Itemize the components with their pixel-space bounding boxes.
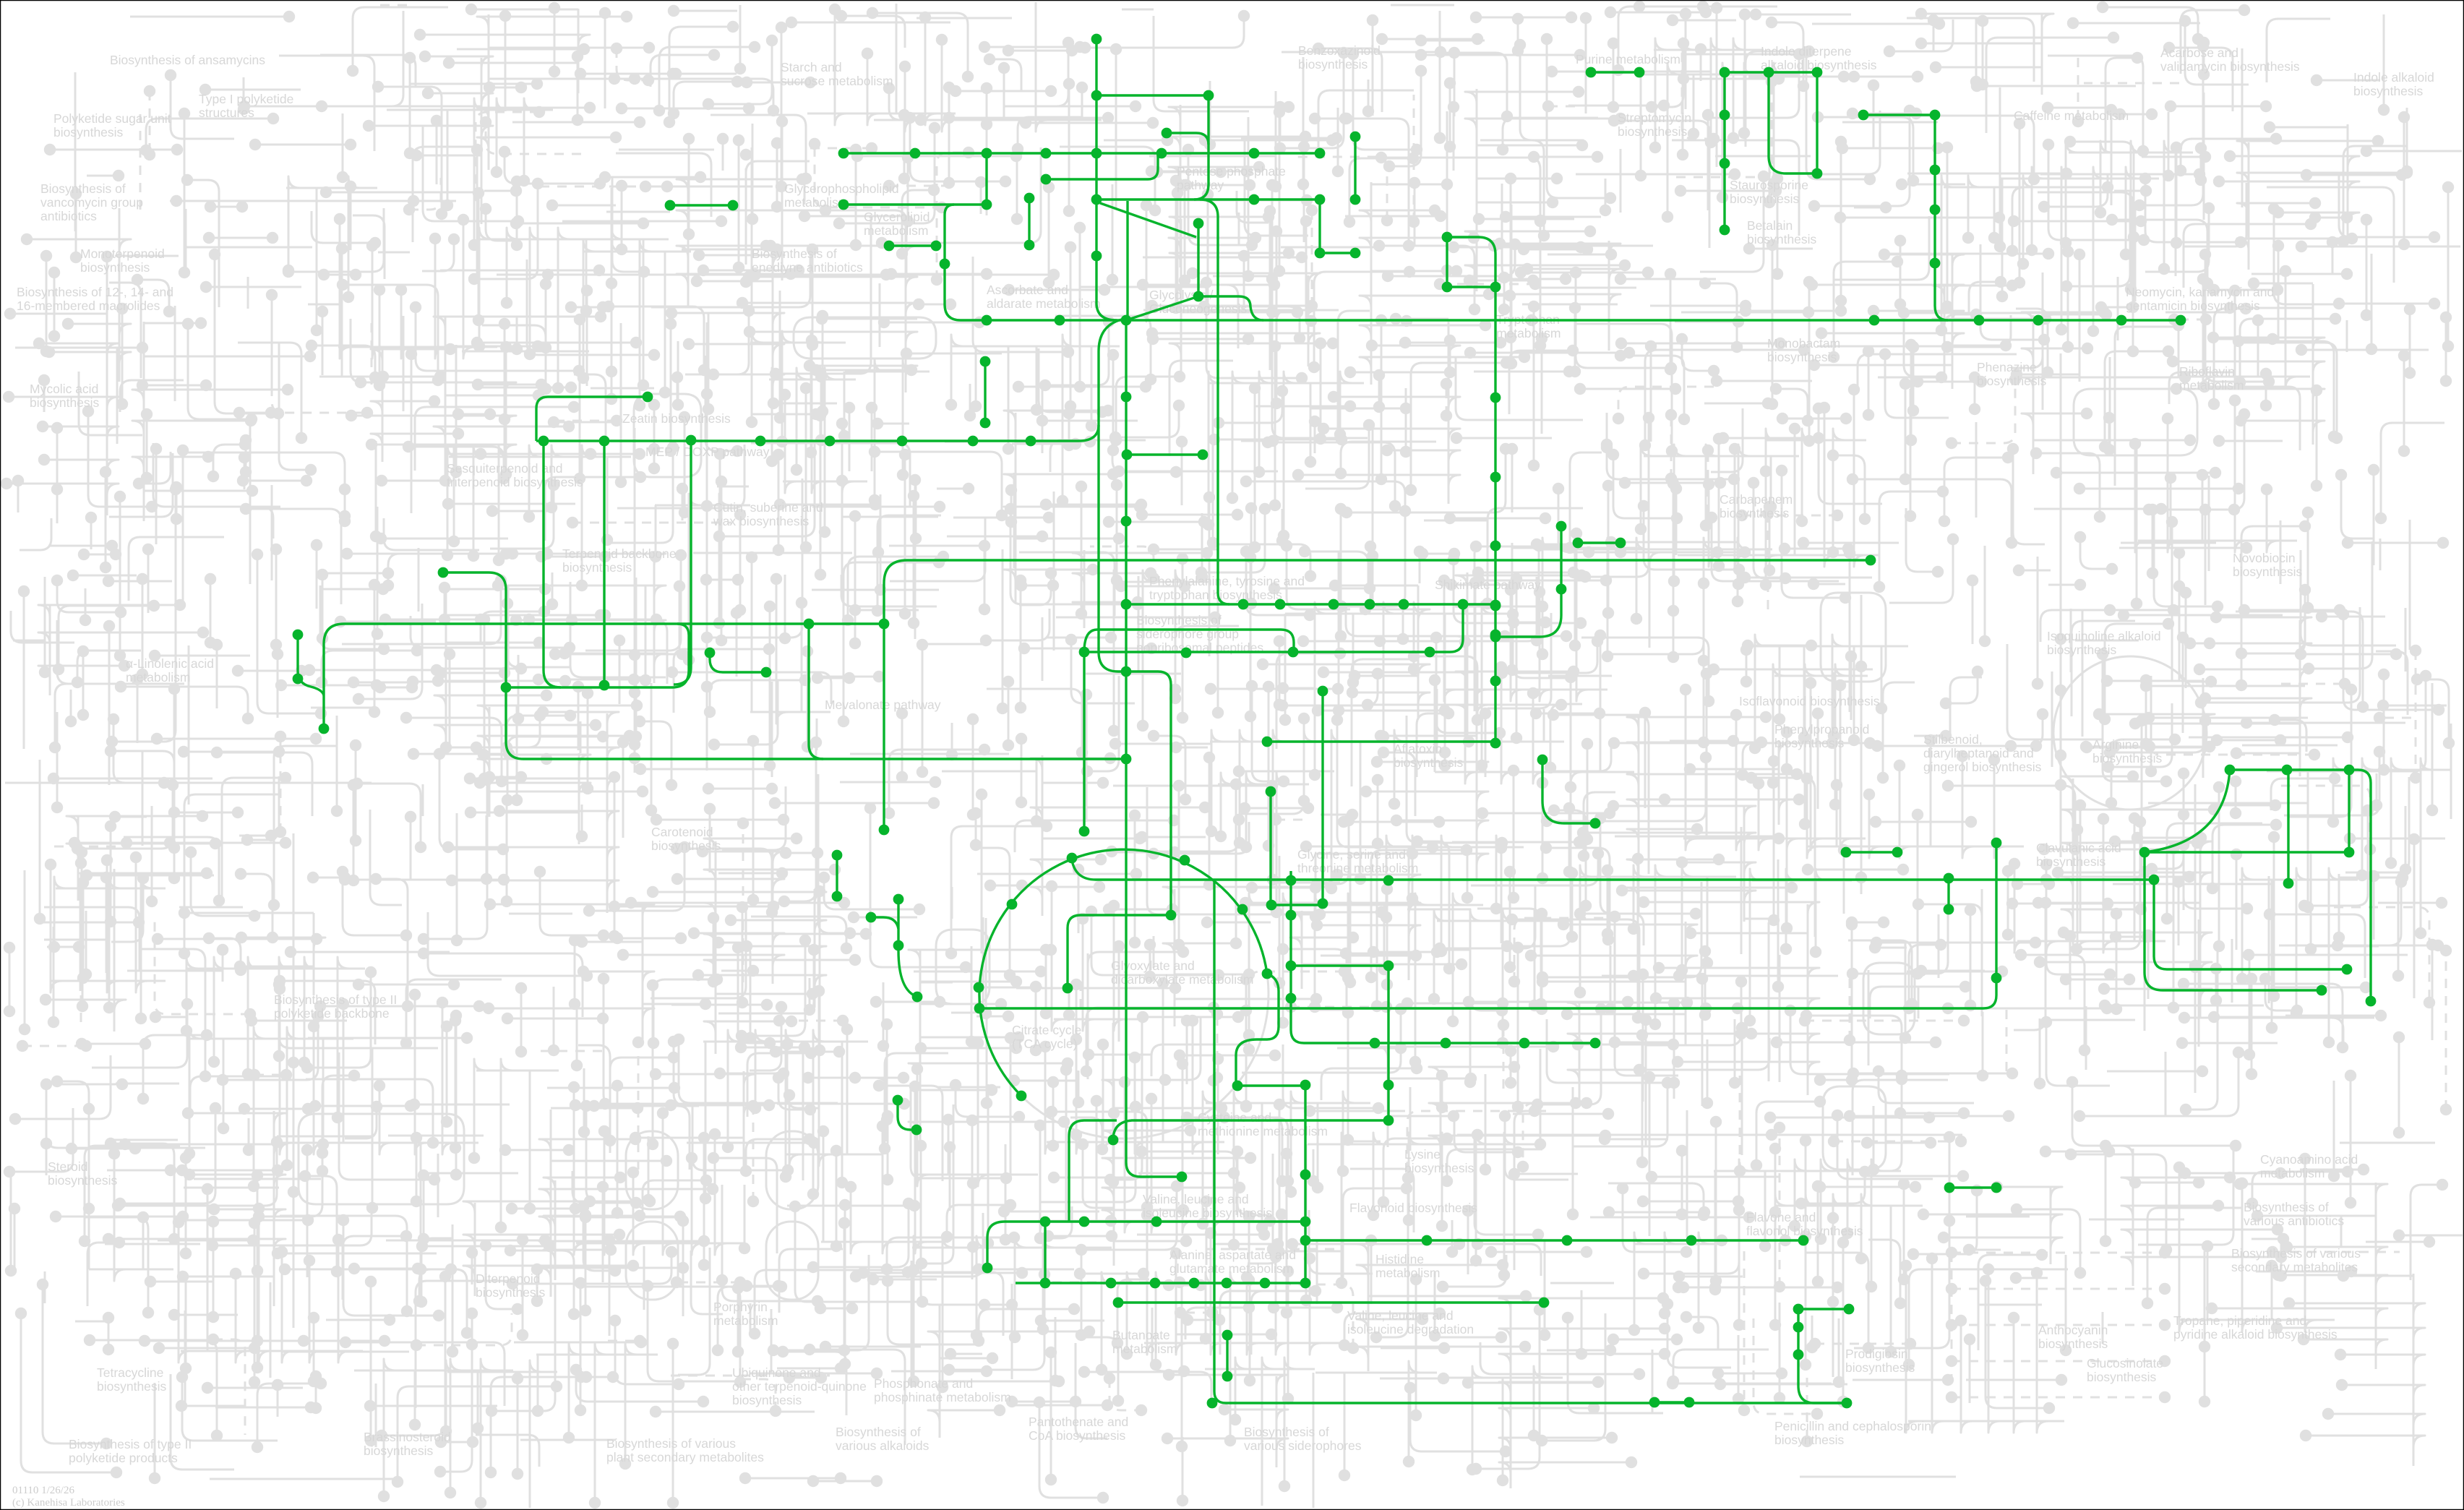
svg-text:biosynthesis: biosynthesis xyxy=(732,1393,802,1407)
svg-text:metabolism: metabolism xyxy=(2179,378,2244,392)
svg-text:Carbapenem: Carbapenem xyxy=(1720,492,1793,507)
svg-text:structures: structures xyxy=(199,106,254,120)
svg-text:Valine, leucine and: Valine, leucine and xyxy=(1143,1192,1249,1206)
svg-text:Histidine: Histidine xyxy=(1375,1252,1424,1266)
svg-text:biosynthesis: biosynthesis xyxy=(1774,736,1845,750)
svg-text:Phenazine: Phenazine xyxy=(1977,360,2037,374)
svg-text:Butanoate: Butanoate xyxy=(1112,1328,1170,1342)
svg-text:Biosynthesis of: Biosynthesis of xyxy=(40,181,126,196)
svg-text:biosynthesis: biosynthesis xyxy=(1774,1433,1845,1447)
svg-text:biosynthesis: biosynthesis xyxy=(53,125,124,140)
svg-text:Isoquinoline alkaloid: Isoquinoline alkaloid xyxy=(2047,629,2161,643)
svg-text:Prodigiosin: Prodigiosin xyxy=(1845,1347,1908,1361)
svg-text:antibiotics: antibiotics xyxy=(40,209,97,223)
svg-text:Flavonoid biosynthesis: Flavonoid biosynthesis xyxy=(1349,1201,1477,1215)
svg-text:Biosynthesis of: Biosynthesis of xyxy=(1136,613,1222,627)
svg-text:biosynthesis: biosynthesis xyxy=(2036,854,2106,869)
svg-text:Betalain: Betalain xyxy=(1747,218,1793,233)
svg-text:biosynthesis: biosynthesis xyxy=(48,1173,118,1188)
svg-text:Alanine, aspartate and: Alanine, aspartate and xyxy=(1169,1248,1296,1262)
svg-text:vancomycin group: vancomycin group xyxy=(40,195,143,210)
svg-text:biosynthesis: biosynthesis xyxy=(80,260,150,275)
svg-text:Novobiocin: Novobiocin xyxy=(2233,551,2296,565)
svg-text:Lysine: Lysine xyxy=(1404,1147,1441,1162)
svg-text:Tetracycline: Tetracycline xyxy=(97,1365,163,1380)
svg-text:polyketide products: polyketide products xyxy=(69,1451,178,1465)
svg-text:Zeatin biosynthesis: Zeatin biosynthesis xyxy=(622,411,731,426)
svg-text:biosynthesis: biosynthesis xyxy=(2047,643,2117,657)
svg-text:various antibiotics: various antibiotics xyxy=(2244,1214,2344,1228)
svg-text:Ubiquinone and: Ubiquinone and xyxy=(732,1365,821,1380)
svg-text:metabolism: metabolism xyxy=(126,670,190,685)
svg-text:biosynthesis: biosynthesis xyxy=(364,1443,434,1458)
svg-text:biosynthesis: biosynthesis xyxy=(1720,506,1790,520)
svg-text:metabolism: metabolism xyxy=(2260,1166,2325,1180)
svg-text:Acarbose and: Acarbose and xyxy=(2160,46,2238,60)
svg-text:Biosynthesis of ansamycins: Biosynthesis of ansamycins xyxy=(110,53,265,67)
svg-text:polyketide backbone: polyketide backbone xyxy=(274,1006,390,1021)
svg-text:Diterpenoid: Diterpenoid xyxy=(476,1271,541,1286)
svg-text:wax biosynthesis: wax biosynthesis xyxy=(713,514,810,528)
svg-text:Starch and: Starch and xyxy=(781,60,842,74)
svg-text:Terpenoid backbone: Terpenoid backbone xyxy=(562,546,677,561)
svg-text:Cutin, suberine and: Cutin, suberine and xyxy=(713,500,823,515)
svg-text:metabolism: metabolism xyxy=(713,1313,778,1328)
svg-text:Type I polyketide: Type I polyketide xyxy=(199,92,293,106)
svg-text:Pantothenate and: Pantothenate and xyxy=(1029,1415,1128,1429)
svg-text:Biosynthesis of type II: Biosynthesis of type II xyxy=(69,1437,192,1451)
svg-text:gingerol biosynthesis: gingerol biosynthesis xyxy=(1923,760,2042,774)
svg-text:Biosynthesis of: Biosynthesis of xyxy=(836,1425,921,1439)
svg-text:Steroid: Steroid xyxy=(48,1159,87,1174)
svg-text:(TCA cycle): (TCA cycle) xyxy=(1012,1037,1077,1051)
svg-text:Glycine, serine and: Glycine, serine and xyxy=(1297,847,1406,862)
svg-text:Stilbenoid,: Stilbenoid, xyxy=(1923,732,1983,747)
svg-text:Indole alkaloid: Indole alkaloid xyxy=(2353,70,2434,85)
svg-text:biosynthesis: biosynthesis xyxy=(1618,124,1688,139)
svg-text:Staurosporine: Staurosporine xyxy=(1730,178,1808,192)
svg-text:Phosphonate and: Phosphonate and xyxy=(874,1376,973,1391)
svg-text:01110 1/26/26: 01110 1/26/26 xyxy=(12,1485,74,1496)
svg-text:Carotenoid: Carotenoid xyxy=(651,825,713,839)
svg-text:Riboflavin: Riboflavin xyxy=(2179,364,2235,379)
svg-text:Glyoxylate and: Glyoxylate and xyxy=(1111,958,1195,973)
svg-text:biosynthesis: biosynthesis xyxy=(1977,374,2047,388)
svg-text:phosphinate metabolism: phosphinate metabolism xyxy=(874,1390,1011,1404)
svg-text:aldarate metabolism: aldarate metabolism xyxy=(987,296,1101,311)
svg-text:Mycolic acid: Mycolic acid xyxy=(30,382,98,396)
svg-text:pyridine alkaloid biosynthesis: pyridine alkaloid biosynthesis xyxy=(2173,1327,2338,1342)
svg-text:Aflatoxin: Aflatoxin xyxy=(1394,742,1442,756)
svg-text:Biosynthesis of: Biosynthesis of xyxy=(1244,1425,1329,1439)
svg-text:biosynthesis: biosynthesis xyxy=(651,838,721,853)
svg-text:16-membered macrolides: 16-membered macrolides xyxy=(17,299,160,313)
svg-text:Streptomycin: Streptomycin xyxy=(1618,111,1691,125)
svg-text:MEP / DOXP pathway: MEP / DOXP pathway xyxy=(645,445,770,459)
svg-text:Biosynthesis of: Biosynthesis of xyxy=(2244,1200,2329,1214)
svg-text:Monoterpenoid: Monoterpenoid xyxy=(80,246,165,261)
svg-text:triterpenoid biosynthesis: triterpenoid biosynthesis xyxy=(447,475,583,489)
svg-text:metabolism: metabolism xyxy=(864,223,928,238)
svg-text:various siderophores: various siderophores xyxy=(1244,1438,1362,1453)
svg-text:Clavulanic acid: Clavulanic acid xyxy=(2036,841,2121,855)
svg-text:Biosynthesis of various: Biosynthesis of various xyxy=(2231,1246,2361,1261)
svg-text:Benzoxazinoid: Benzoxazinoid xyxy=(1298,43,1381,58)
svg-text:biosynthesis: biosynthesis xyxy=(2092,751,2163,765)
svg-text:biosynthesis: biosynthesis xyxy=(1730,192,1800,206)
svg-text:Flavone and: Flavone and xyxy=(1746,1210,1816,1224)
svg-text:glutamate metabolism: glutamate metabolism xyxy=(1169,1261,1293,1276)
svg-text:metabolism: metabolism xyxy=(1375,1266,1440,1280)
svg-text:other terpenoid-quinone: other terpenoid-quinone xyxy=(732,1379,867,1394)
svg-text:Cysteine and: Cysteine and xyxy=(1198,1110,1271,1125)
svg-text:Sesquiterpenoid and: Sesquiterpenoid and xyxy=(447,461,563,476)
svg-text:Glycerophospholipid: Glycerophospholipid xyxy=(784,181,899,196)
svg-text:Polyketide sugar unit: Polyketide sugar unit xyxy=(53,111,171,126)
svg-text:isoleucine degradation: isoleucine degradation xyxy=(1347,1322,1474,1337)
svg-text:dicarboxylate metabolism: dicarboxylate metabolism xyxy=(1111,972,1253,987)
svg-text:Citrate cycle: Citrate cycle xyxy=(1012,1023,1081,1037)
svg-text:methionine metabolism: methionine metabolism xyxy=(1198,1124,1328,1138)
svg-text:Biosynthesis of: Biosynthesis of xyxy=(752,246,837,261)
svg-text:Monobactam: Monobactam xyxy=(1767,336,1840,351)
svg-text:biosynthesis: biosynthesis xyxy=(1767,350,1837,364)
svg-text:threonine metabolism: threonine metabolism xyxy=(1297,861,1418,875)
svg-text:Ascorbate and: Ascorbate and xyxy=(987,283,1068,297)
svg-text:Tropane, piperidine and: Tropane, piperidine and xyxy=(2173,1313,2306,1328)
svg-text:various alkaloids: various alkaloids xyxy=(836,1438,930,1453)
svg-text:Penicillin and cephalosporin: Penicillin and cephalosporin xyxy=(1774,1419,1931,1433)
svg-text:Glycerolipid: Glycerolipid xyxy=(864,210,930,224)
svg-text:Biosynthesis of 12-, 14- and: Biosynthesis of 12-, 14- and xyxy=(17,285,173,299)
svg-text:Pentose phosphate: Pentose phosphate xyxy=(1177,164,1286,179)
svg-text:sucrose metabolism: sucrose metabolism xyxy=(781,74,893,88)
svg-text:Purine metabolism: Purine metabolism xyxy=(1576,52,1680,67)
svg-text:biosynthesis: biosynthesis xyxy=(2353,84,2424,98)
svg-text:enediyne antibiotics: enediyne antibiotics xyxy=(752,260,863,275)
svg-text:biosynthesis: biosynthesis xyxy=(1404,1161,1474,1175)
svg-text:Phenylpropanoid: Phenylpropanoid xyxy=(1774,722,1869,737)
svg-text:Phenylalanine, tyrosine and: Phenylalanine, tyrosine and xyxy=(1149,574,1305,588)
svg-text:tryptophan biosynthesis: tryptophan biosynthesis xyxy=(1149,588,1282,602)
svg-text:Neomycin, kanamycin and: Neomycin, kanamycin and xyxy=(2126,285,2274,299)
svg-text:pathway: pathway xyxy=(1177,178,1224,192)
svg-text:Porphyrin: Porphyrin xyxy=(713,1300,768,1314)
svg-text:biosynthesis: biosynthesis xyxy=(2038,1337,2108,1351)
svg-text:Biosynthesis of various: Biosynthesis of various xyxy=(606,1436,736,1451)
svg-text:Isoflavonoid biosynthesis: Isoflavonoid biosynthesis xyxy=(1739,694,1880,708)
svg-text:metabolism: metabolism xyxy=(1496,326,1561,340)
svg-text:biosynthesis: biosynthesis xyxy=(1747,232,1817,246)
svg-text:α-Linolenic acid: α-Linolenic acid xyxy=(126,656,214,671)
svg-text:(c) Kanehisa Laboratories: (c) Kanehisa Laboratories xyxy=(12,1497,125,1509)
svg-text:biosynthesis: biosynthesis xyxy=(1298,57,1368,72)
svg-text:Arginine: Arginine xyxy=(2092,737,2139,752)
svg-text:biosynthesis: biosynthesis xyxy=(1394,755,1464,770)
svg-text:gentamicin biosynthesis: gentamicin biosynthesis xyxy=(2126,299,2260,313)
svg-text:biosynthesis: biosynthesis xyxy=(1845,1360,1915,1375)
svg-text:isoleucine biosynthesis: isoleucine biosynthesis xyxy=(1143,1206,1272,1220)
svg-text:metabolism: metabolism xyxy=(1112,1342,1177,1356)
svg-text:biosynthesis: biosynthesis xyxy=(562,560,632,575)
svg-text:Cyanoamino acid: Cyanoamino acid xyxy=(2260,1152,2358,1167)
svg-text:CoA biosynthesis: CoA biosynthesis xyxy=(1029,1428,1125,1443)
svg-text:biosynthesis: biosynthesis xyxy=(30,395,100,410)
svg-text:diarylheptanoid and: diarylheptanoid and xyxy=(1923,746,2034,760)
svg-text:Glucosinolate: Glucosinolate xyxy=(2087,1356,2163,1370)
svg-text:Anthocyanin: Anthocyanin xyxy=(2038,1323,2108,1337)
svg-text:Brassinosteroid: Brassinosteroid xyxy=(364,1430,451,1444)
svg-text:biosynthesis: biosynthesis xyxy=(476,1285,546,1300)
svg-text:Valine, leucine and: Valine, leucine and xyxy=(1347,1308,1454,1323)
svg-text:biosynthesis: biosynthesis xyxy=(97,1379,167,1394)
svg-text:biosynthesis: biosynthesis xyxy=(2233,565,2303,579)
svg-text:Shikimate pathway: Shikimate pathway xyxy=(1435,578,1541,592)
svg-text:Caffeine metabolism: Caffeine metabolism xyxy=(2014,108,2129,123)
svg-text:Biosynthesis of type II: Biosynthesis of type II xyxy=(274,992,397,1007)
svg-text:biosynthesis: biosynthesis xyxy=(2087,1370,2157,1384)
svg-text:validamycin biosynthesis: validamycin biosynthesis xyxy=(2160,59,2300,74)
svg-text:Indole diterpene: Indole diterpene xyxy=(1761,44,1852,59)
svg-text:plant secondary metabolites: plant secondary metabolites xyxy=(606,1450,764,1464)
svg-text:Glycolysis /: Glycolysis / xyxy=(1149,288,1214,302)
svg-text:secondary metabolites: secondary metabolites xyxy=(2231,1260,2358,1274)
